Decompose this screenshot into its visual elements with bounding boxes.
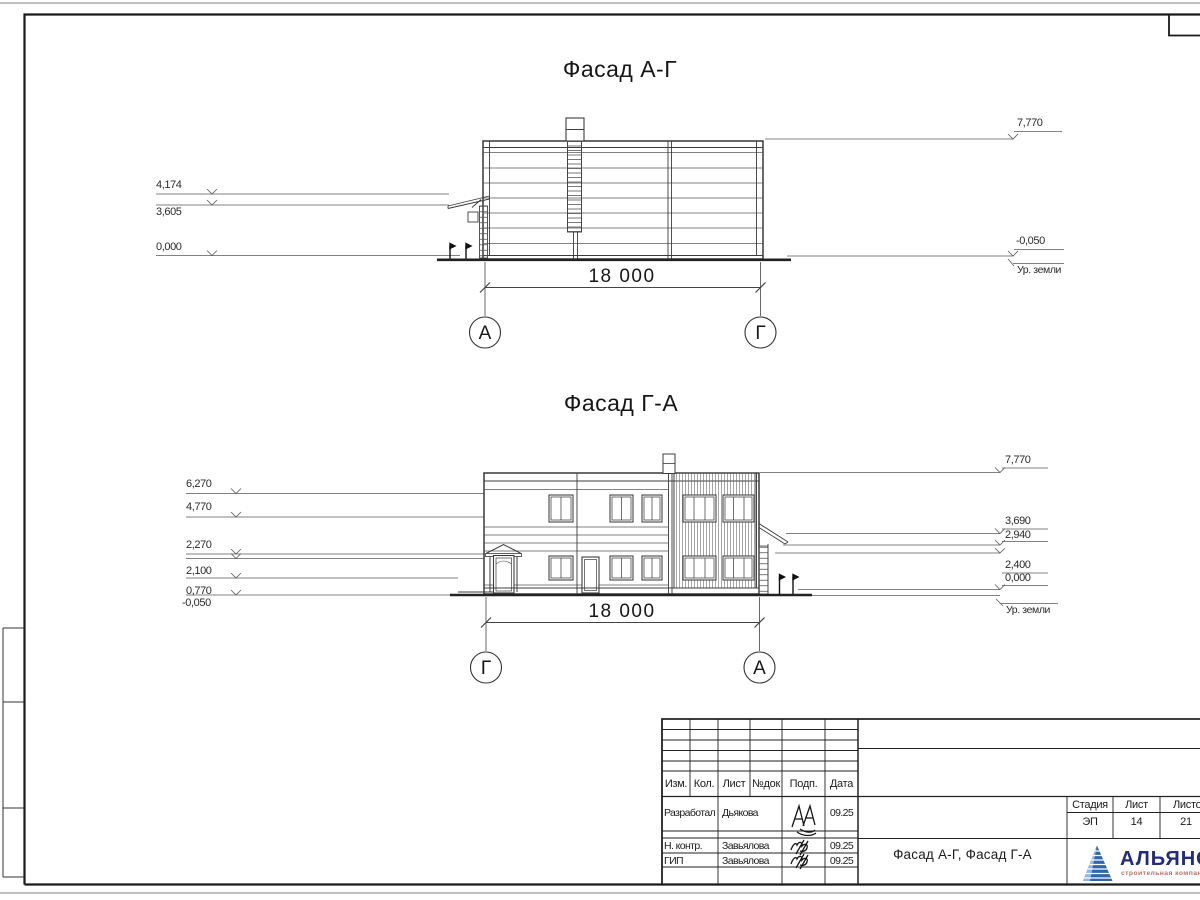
stage-value: 21 xyxy=(1160,817,1200,829)
facade2-side-canopy xyxy=(759,524,788,595)
vent-window xyxy=(468,212,478,222)
titleblock-date: 09.25 xyxy=(825,808,858,819)
elevation-mark: 0,000 xyxy=(156,242,182,254)
elevation-mark: 2,940 xyxy=(1005,530,1031,542)
elevation-mark: 2,400 xyxy=(1005,560,1031,572)
elevation-mark: 4,770 xyxy=(186,502,212,514)
wall-ladder xyxy=(759,546,768,594)
elevation-mark: -0,050 xyxy=(1016,236,1045,248)
facade1-bollards xyxy=(450,244,471,260)
top-right-stamp-box xyxy=(1169,14,1200,36)
titleblock-role: Н. контр. xyxy=(664,841,702,852)
company-logo-subtitle: строительная компания xyxy=(1121,870,1200,877)
titleblock-name: Завьялова xyxy=(722,841,769,852)
titleblock-date: 09.25 xyxy=(825,841,858,852)
facade2-bollards xyxy=(780,575,799,595)
elevation-mark: -0,050 xyxy=(182,598,211,610)
drawing-sheet: Фасад А-Г 4,174 3,605 0,000 7,770 -0,050… xyxy=(0,0,1200,900)
elevation-mark: 3,690 xyxy=(1005,516,1031,528)
facade1-title: Фасад А-Г xyxy=(470,57,770,81)
elevation-mark: 7,770 xyxy=(1005,455,1031,467)
elevation-mark: 2,100 xyxy=(186,566,212,578)
ground-level-label: Ур. земли xyxy=(1017,265,1061,276)
wall-ladder xyxy=(480,206,488,258)
elevation-mark: 6,270 xyxy=(186,479,212,491)
elevation-mark: 3,605 xyxy=(156,207,182,219)
stage-value: ЭП xyxy=(1067,817,1113,829)
signatures xyxy=(791,806,816,869)
titleblock-name: Завьялова xyxy=(722,856,769,867)
dimension-label: 18 000 xyxy=(547,602,697,622)
dimension-label: 18 000 xyxy=(547,267,697,287)
elevation-mark: 0,000 xyxy=(1005,573,1031,585)
stage-header: Листов xyxy=(1160,800,1200,812)
axis-label: Г xyxy=(745,324,777,344)
titleblock-col-header: Изм. xyxy=(662,779,690,791)
elevation-mark: 4,174 xyxy=(156,180,182,192)
stage-header: Лист xyxy=(1113,800,1160,812)
titleblock-col-header: №док xyxy=(750,779,782,791)
axis-label: А xyxy=(469,324,501,344)
titleblock-role: ГИП xyxy=(664,856,683,867)
titleblock-name: Дьякова xyxy=(722,808,758,819)
titleblock-col-header: Кол. xyxy=(690,779,718,791)
stage-header: Стадия xyxy=(1067,800,1113,812)
elevation-mark: 0,770 xyxy=(186,586,212,598)
titleblock-col-header: Лист xyxy=(718,779,750,791)
ground-level-label: Ур. земли xyxy=(1006,605,1050,616)
titleblock-role: Разработал xyxy=(664,808,715,819)
alliance-logo-pyramid xyxy=(1080,846,1115,882)
stage-value: 14 xyxy=(1113,817,1160,829)
sheet-frame xyxy=(0,3,1200,893)
left-margin-boxes xyxy=(3,628,25,877)
titleblock-col-header: Дата xyxy=(825,779,858,791)
company-logo-name: АЛЬЯНС xyxy=(1120,849,1200,870)
facade1-drawing xyxy=(156,118,1064,348)
document-title: Фасад А-Г, Фасад Г-А xyxy=(858,848,1067,862)
facade2-drawing xyxy=(186,454,1058,683)
titleblock-col-header: Подп. xyxy=(782,779,825,791)
axis-label: А xyxy=(744,659,776,679)
axis-label: Г xyxy=(470,659,502,679)
elevation-mark: 7,770 xyxy=(1017,118,1043,130)
titleblock-date: 09.25 xyxy=(825,856,858,867)
elevation-mark: 2,270 xyxy=(186,540,212,552)
facade2-title: Фасад Г-А xyxy=(471,391,771,415)
drawing-canvas xyxy=(0,0,1200,900)
facade2-chimney xyxy=(663,454,675,474)
